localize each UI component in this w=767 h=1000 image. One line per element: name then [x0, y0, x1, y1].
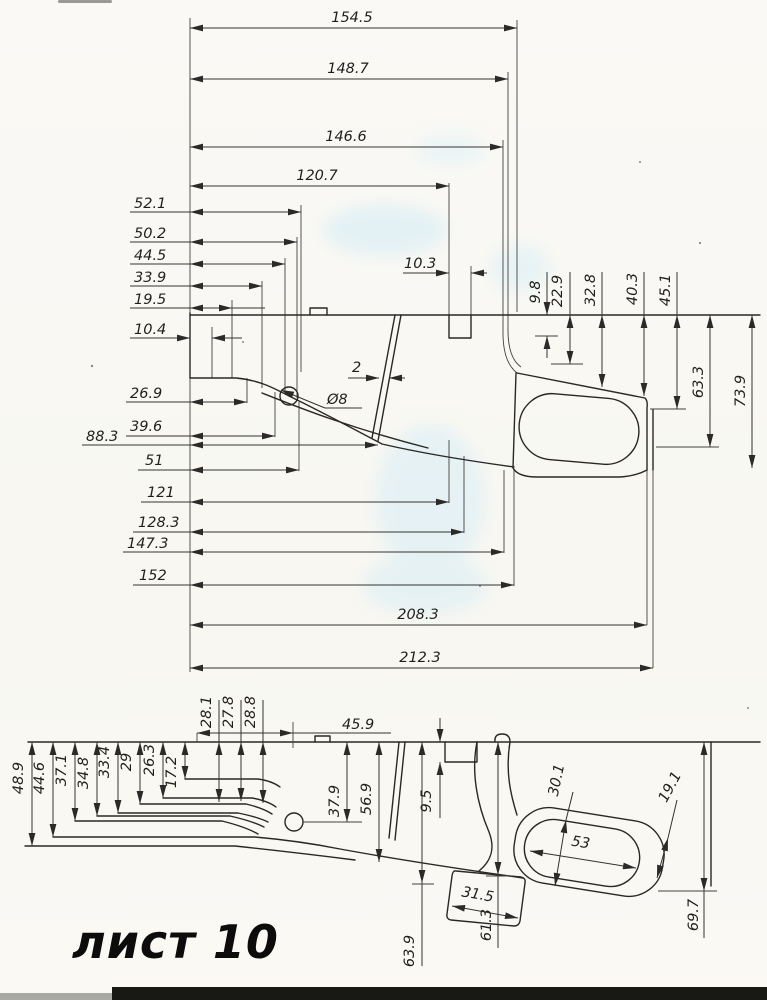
dim-22-9: 22.9 — [550, 275, 566, 307]
dim-208-3: 208.3 — [397, 607, 439, 623]
sheet-label: лист 10 — [72, 915, 279, 969]
dim-hole-dia: Ø8 — [326, 392, 348, 408]
dim-10-4: 10.4 — [134, 322, 166, 338]
dim-29: 29 — [119, 753, 135, 771]
dim-147-3: 147.3 — [127, 536, 169, 552]
dim-19-1: 19.1 — [656, 769, 685, 805]
dim-slot-2: 2 — [352, 360, 361, 376]
dim-10-3: 10.3 — [404, 256, 436, 272]
dim-33-9: 33.9 — [134, 270, 166, 286]
dim-63-9: 63.9 — [402, 935, 418, 967]
dim-44-5: 44.5 — [134, 248, 166, 264]
dim-212-3: 212.3 — [399, 650, 441, 666]
technical-drawing: 154.5 148.7 146.6 120.7 52.1 50.2 44.5 3… — [0, 0, 767, 1000]
dim-63-3: 63.3 — [691, 366, 707, 398]
dim-48-9: 48.9 — [11, 762, 27, 794]
dim-53: 53 — [570, 834, 591, 853]
dim-32-8: 32.8 — [583, 274, 599, 306]
dim-121: 121 — [147, 485, 175, 501]
scan-smudge-top — [58, 0, 112, 3]
dim-146-6: 146.6 — [325, 129, 367, 145]
dim-37-9: 37.9 — [327, 785, 343, 817]
scanner-bar — [0, 987, 767, 1000]
dim-50-2: 50.2 — [134, 226, 166, 242]
dim-27-8: 27.8 — [221, 696, 237, 728]
dim-17-2: 17.2 — [164, 756, 180, 788]
dim-45-1: 45.1 — [658, 274, 674, 306]
scanned-drawing-page: 154.5 148.7 146.6 120.7 52.1 50.2 44.5 3… — [0, 0, 767, 1000]
dim-39-6: 39.6 — [130, 419, 162, 435]
dim-30-1: 30.1 — [546, 763, 568, 798]
dim-56-9: 56.9 — [359, 783, 375, 815]
dim-37-1: 37.1 — [54, 754, 70, 786]
dim-154-5: 154.5 — [331, 10, 373, 26]
dim-128-3: 128.3 — [138, 515, 180, 531]
dim-33-4: 33.4 — [97, 746, 113, 778]
dim-51: 51 — [145, 453, 163, 469]
dim-88-3: 88.3 — [86, 429, 118, 445]
dim-152: 152 — [139, 568, 167, 584]
dim-9-8: 9.8 — [528, 280, 544, 303]
dim-61-3: 61.3 — [479, 909, 495, 941]
dim-26-9: 26.9 — [130, 386, 162, 402]
dim-120-7: 120.7 — [296, 168, 338, 184]
stock-plan-outline — [25, 734, 760, 926]
dim-73-9: 73.9 — [733, 375, 749, 407]
dim-69-7: 69.7 — [686, 898, 702, 931]
dim-28-1: 28.1 — [199, 696, 215, 728]
dim-28-8: 28.8 — [243, 696, 259, 728]
dim-19-5: 19.5 — [134, 292, 166, 308]
dim-31-5: 31.5 — [460, 884, 495, 905]
dim-26-3: 26.3 — [142, 744, 158, 776]
dim-34-8: 34.8 — [76, 757, 92, 789]
stock-side-profile-outline — [190, 308, 760, 477]
dim-148-7: 148.7 — [327, 61, 369, 77]
hole-8mm-plan — [285, 813, 303, 831]
dim-45-9: 45.9 — [342, 717, 374, 733]
dim-40-3: 40.3 — [625, 273, 641, 305]
dim-52-1: 52.1 — [134, 196, 166, 212]
dim-44-6: 44.6 — [32, 762, 48, 794]
dim-9-5: 9.5 — [419, 789, 435, 812]
